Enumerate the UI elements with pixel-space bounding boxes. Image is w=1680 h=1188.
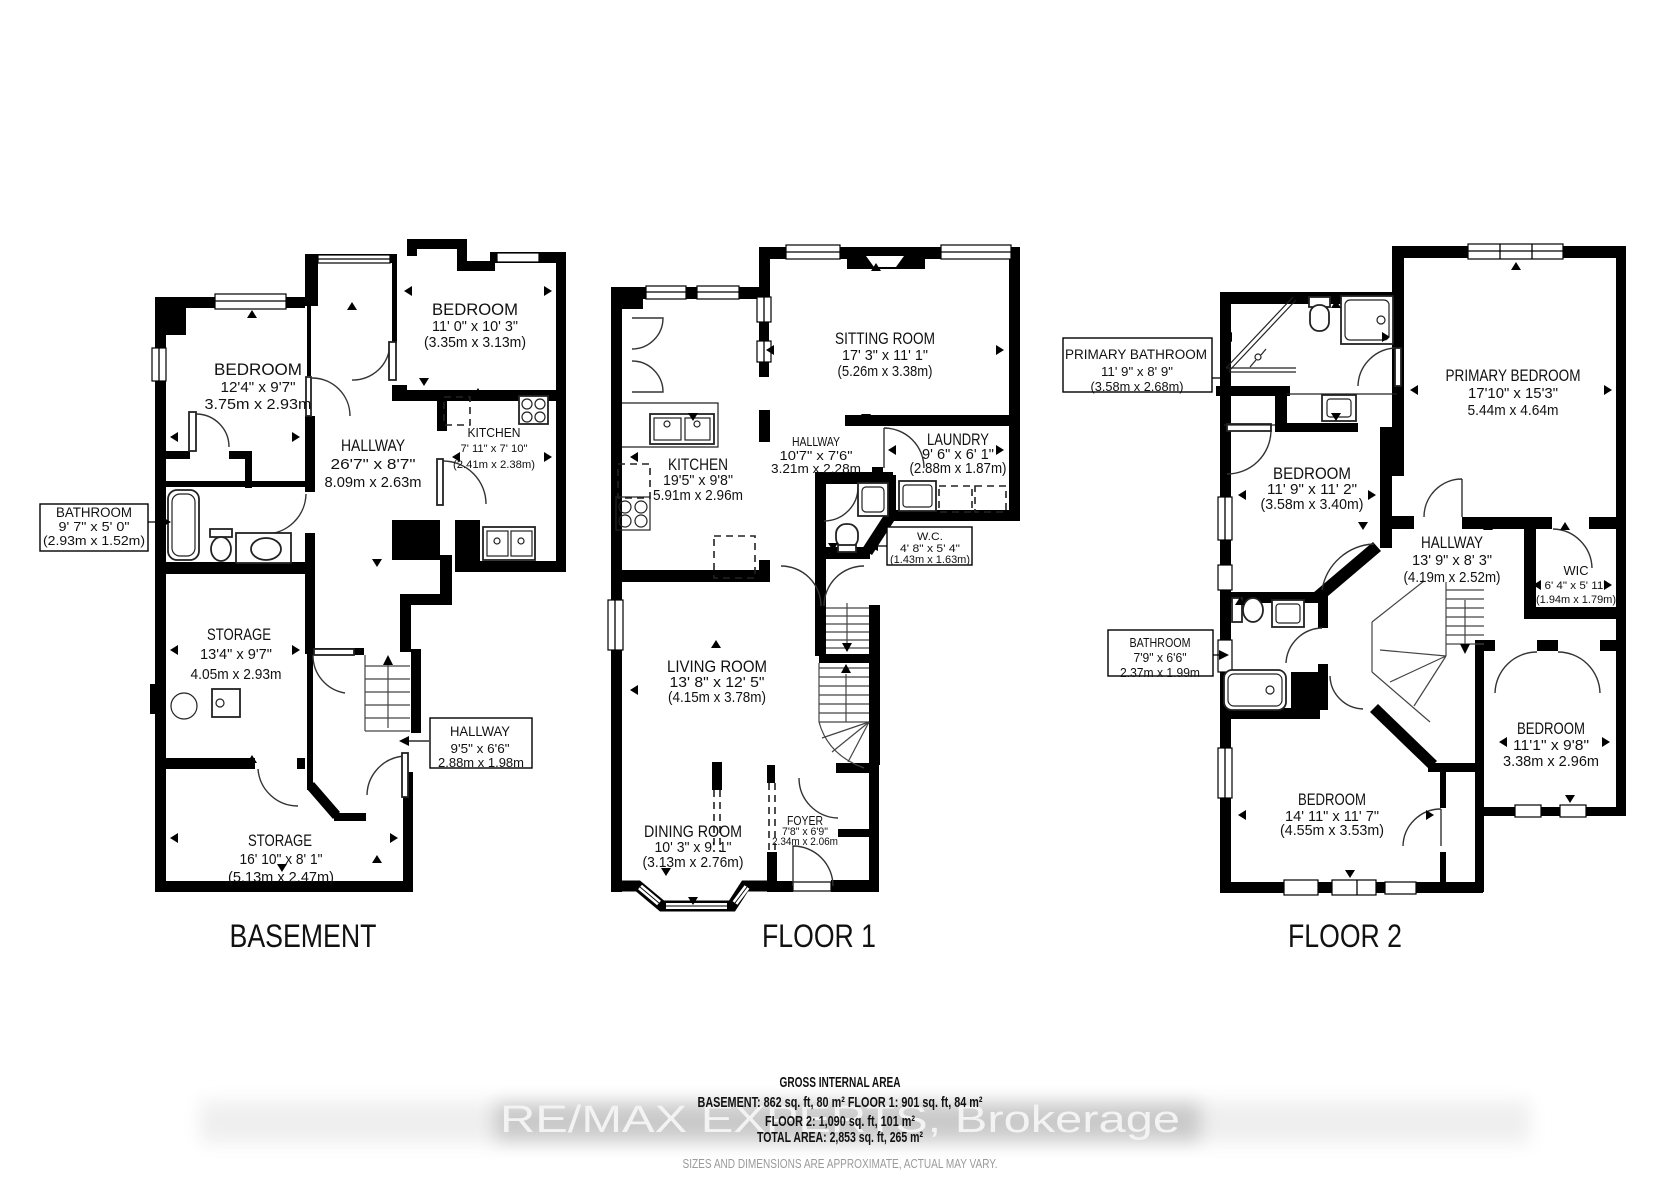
svg-text:11' 0" x 10' 3": 11' 0" x 10' 3" — [432, 318, 518, 335]
svg-text:6' 4" x 5' 11": 6' 4" x 5' 11" — [1545, 580, 1608, 592]
svg-text:BATHROOM: BATHROOM — [56, 505, 132, 520]
svg-text:HALLWAY: HALLWAY — [1421, 533, 1483, 552]
svg-text:(1.94m x 1.79m): (1.94m x 1.79m) — [1536, 594, 1616, 606]
svg-text:(3.58m x 2.68m): (3.58m x 2.68m) — [1091, 380, 1184, 394]
svg-text:2.37m x 1.99m: 2.37m x 1.99m — [1120, 666, 1200, 680]
svg-text:3.21m x 2.28m: 3.21m x 2.28m — [771, 462, 861, 476]
svg-text:(3.35m x 3.13m): (3.35m x 3.13m) — [424, 334, 526, 351]
svg-text:(2.88m x 1.87m): (2.88m x 1.87m) — [910, 460, 1007, 477]
svg-text:STORAGE: STORAGE — [248, 831, 312, 850]
svg-text:(1.43m x 1.63m): (1.43m x 1.63m) — [890, 554, 970, 566]
svg-text:GROSS INTERNAL AREA: GROSS INTERNAL AREA — [780, 1074, 901, 1091]
svg-text:HALLWAY: HALLWAY — [450, 723, 511, 739]
svg-text:13'4" x 9'7": 13'4" x 9'7" — [200, 646, 272, 663]
svg-text:FLOOR 1: FLOOR 1 — [762, 918, 876, 954]
svg-text:3.38m x 2.96m: 3.38m x 2.96m — [1503, 753, 1599, 770]
svg-text:12'4" x 9'7": 12'4" x 9'7" — [221, 379, 296, 396]
svg-text:PRIMARY BEDROOM: PRIMARY BEDROOM — [1446, 366, 1581, 385]
svg-text:5.91m x 2.96m: 5.91m x 2.96m — [653, 487, 743, 504]
svg-text:TOTAL AREA: 2,853 sq. ft, 265: TOTAL AREA: 2,853 sq. ft, 265 m² — [757, 1129, 923, 1146]
svg-text:BASEMENT: 862 sq. ft, 80 m² FL: BASEMENT: 862 sq. ft, 80 m² FLOOR 1: 901… — [698, 1094, 983, 1111]
svg-text:FLOOR 2: 1,090 sq. ft, 101 m²: FLOOR 2: 1,090 sq. ft, 101 m² — [765, 1113, 915, 1130]
svg-text:(2.41m x 2.38m): (2.41m x 2.38m) — [453, 459, 535, 471]
svg-text:(5.13m x 2.47m): (5.13m x 2.47m) — [228, 869, 334, 886]
svg-text:SIZES AND DIMENSIONS ARE APPRO: SIZES AND DIMENSIONS ARE APPROXIMATE, AC… — [683, 1156, 998, 1171]
svg-text:(4.19m x 2.52m): (4.19m x 2.52m) — [1404, 569, 1501, 586]
svg-text:(3.13m x 2.76m): (3.13m x 2.76m) — [643, 854, 744, 871]
svg-text:W.C.: W.C. — [917, 531, 943, 543]
svg-text:4.05m x 2.93m: 4.05m x 2.93m — [191, 666, 282, 683]
svg-text:WIC: WIC — [1564, 564, 1589, 578]
svg-text:STORAGE: STORAGE — [207, 625, 271, 644]
svg-text:BATHROOM: BATHROOM — [1130, 635, 1191, 650]
svg-text:10'7" x 7'6": 10'7" x 7'6" — [780, 449, 853, 463]
svg-text:BEDROOM: BEDROOM — [1517, 719, 1585, 738]
svg-text:BEDROOM: BEDROOM — [432, 300, 518, 319]
svg-text:26'7" x 8'7": 26'7" x 8'7" — [331, 456, 416, 473]
svg-text:2.34m x 2.06m: 2.34m x 2.06m — [772, 836, 838, 848]
svg-text:2.88m x 1.98m: 2.88m x 1.98m — [438, 756, 524, 770]
svg-text:7' 11" x 7' 10": 7' 11" x 7' 10" — [461, 443, 528, 455]
svg-text:HALLWAY: HALLWAY — [792, 435, 841, 449]
svg-text:BEDROOM: BEDROOM — [1298, 790, 1366, 809]
svg-text:17' 3" x 11' 1": 17' 3" x 11' 1" — [842, 347, 928, 364]
svg-text:9'5" x 6'6": 9'5" x 6'6" — [451, 742, 510, 756]
svg-text:(2.93m x 1.52m): (2.93m x 1.52m) — [43, 534, 145, 548]
svg-text:(4.55m x 3.53m): (4.55m x 3.53m) — [1280, 822, 1384, 839]
svg-text:9' 7" x 5' 0": 9' 7" x 5' 0" — [59, 520, 130, 534]
svg-text:7'9" x 6'6": 7'9" x 6'6" — [1134, 651, 1187, 665]
svg-text:BASEMENT: BASEMENT — [230, 918, 377, 954]
svg-text:(5.26m x 3.38m): (5.26m x 3.38m) — [838, 363, 933, 380]
svg-text:HALLWAY: HALLWAY — [341, 436, 405, 455]
svg-text:17'10" x 15'3": 17'10" x 15'3" — [1468, 385, 1558, 402]
svg-text:SITTING ROOM: SITTING ROOM — [835, 329, 935, 348]
svg-text:5.44m x 4.64m: 5.44m x 4.64m — [1468, 402, 1559, 419]
svg-text:3.75m x 2.93m: 3.75m x 2.93m — [205, 396, 312, 413]
svg-text:FLOOR 2: FLOOR 2 — [1288, 918, 1402, 954]
svg-text:11'1" x 9'8": 11'1" x 9'8" — [1513, 737, 1589, 754]
svg-text:KITCHEN: KITCHEN — [468, 426, 521, 440]
svg-text:11' 9" x 8' 9": 11' 9" x 8' 9" — [1101, 365, 1173, 379]
svg-text:BEDROOM: BEDROOM — [214, 360, 302, 379]
svg-text:(4.15m x 3.78m): (4.15m x 3.78m) — [668, 689, 766, 706]
svg-text:8.09m x 2.63m: 8.09m x 2.63m — [325, 474, 422, 491]
svg-text:PRIMARY BATHROOM: PRIMARY BATHROOM — [1065, 347, 1207, 362]
svg-text:(3.58m x 3.40m): (3.58m x 3.40m) — [1261, 496, 1364, 513]
svg-text:13' 9" x 8' 3": 13' 9" x 8' 3" — [1412, 552, 1492, 569]
